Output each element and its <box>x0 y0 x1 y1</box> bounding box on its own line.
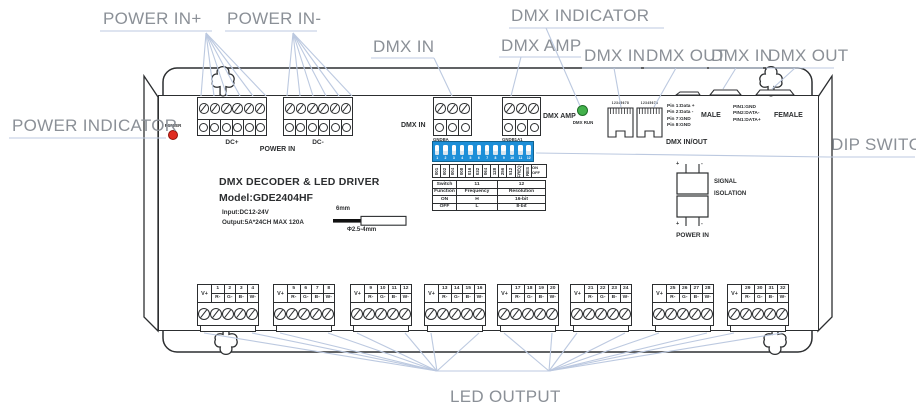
wire-hole <box>284 120 295 135</box>
screw-terminal <box>232 103 243 114</box>
rj45-pin-numbers: 12345678 <box>637 101 662 105</box>
dip-value-cell: 008 <box>457 165 465 177</box>
dc-minus-label: DC- <box>283 139 353 146</box>
dip-value-text: 004 <box>451 167 456 174</box>
screw-terminal <box>221 103 232 114</box>
dip-toggle-handle <box>477 145 482 156</box>
dip-switch: 123456789101112 <box>432 141 534 162</box>
wire-diameter-label: Φ2.5-4mm <box>347 227 376 233</box>
keyhole-slot-icon <box>760 67 782 96</box>
callout-dmx-indicator: DMX INDICATOR <box>511 6 649 26</box>
female-pinout-list: PIN1:GNDPIN2:DATA-PIN1:DATA+ <box>733 105 761 124</box>
wire-hole <box>295 120 307 135</box>
callout-led-output: LED OUTPUT <box>450 387 561 407</box>
signal-label: SIGNAL <box>714 179 737 185</box>
dip-table-row: Switch1112 <box>433 181 546 189</box>
dmx-in-screw-row <box>433 97 472 120</box>
female-pin-line: PIN1:DATA+ <box>733 118 761 124</box>
dip-toggle: 2 <box>441 142 449 161</box>
wire-hole <box>198 120 209 135</box>
wire-hole-icon <box>199 123 208 132</box>
screw-slot-icon <box>245 104 252 113</box>
screw-terminal <box>199 103 210 114</box>
dip-table-cell: Function <box>433 188 457 196</box>
dip-toggle: 4 <box>458 142 466 161</box>
right-mounting-fin <box>818 76 832 331</box>
dip-toggle: 12 <box>525 142 533 161</box>
dip-legend-off: OFF <box>532 170 546 175</box>
male-pinout-list: Pin 1:Data +Pin 2:Data -Pin 7:GNDPin 8:G… <box>667 104 695 130</box>
dmx-in-block-label: DMX IN <box>401 122 426 129</box>
screw-terminal <box>318 103 329 114</box>
screw-terminal <box>447 103 458 114</box>
dip-toggle: 6 <box>475 142 483 161</box>
diagram-canvas: DC+ DC- POWER IN GNDBA DMX IN GNDB1A1 DM… <box>0 0 916 416</box>
wire-hole <box>232 120 244 135</box>
callout-dip-switch: DIP SWITCH <box>831 135 916 155</box>
callout-dmx-out-2: DMX OUT <box>768 46 848 66</box>
female-label: FEMALE <box>774 112 803 119</box>
dip-table-cell: Switch <box>433 181 457 189</box>
dip-toggle-number: 8 <box>495 156 497 160</box>
screw-terminal <box>341 103 352 114</box>
dmx-amp-block-label: DMX AMP <box>543 113 576 120</box>
callout-power-in-minus: POWER IN- <box>227 9 321 29</box>
screw-slot-icon <box>286 104 293 113</box>
left-mounting-fin <box>144 76 158 331</box>
wire-hole-icon <box>256 123 265 132</box>
power-dc-minus-wire-holes <box>283 119 353 136</box>
power-dc-plus-screw-row <box>197 97 267 120</box>
dip-value-cell: 128 <box>490 165 498 177</box>
screw-terminal <box>296 103 307 114</box>
dip-toggle: 9 <box>500 142 508 161</box>
dip-toggle-handle <box>501 145 506 156</box>
dip-table-cell: H <box>457 196 498 204</box>
device-model: Model:GDE2404HF <box>219 192 313 204</box>
dmx-amp-screw-row <box>502 97 541 120</box>
dip-value-text: 064 <box>484 167 489 174</box>
wire-hole <box>527 120 540 135</box>
dmx-amp-wire-holes <box>502 119 541 136</box>
dmx-run-label: DMX RUN <box>568 120 598 125</box>
wire-hole-icon <box>530 123 539 132</box>
screw-slot-icon <box>200 104 207 113</box>
dip-toggle-handle <box>468 145 473 156</box>
dip-value-text: 512 <box>508 167 513 174</box>
wire-hole-icon <box>435 123 444 132</box>
dip-toggle-number: 7 <box>486 156 488 160</box>
screw-slot-icon <box>506 104 513 113</box>
dip-toggle: 7 <box>483 142 491 161</box>
screw-terminal <box>255 103 266 114</box>
dip-value-cell: 064 <box>482 165 490 177</box>
screw-slot-icon <box>437 104 444 113</box>
device-output-spec: Output:5A*24CH MAX 120A <box>222 219 304 226</box>
wire-hole <box>458 120 471 135</box>
dmx-run-led <box>577 105 588 116</box>
isolation-label: ISOLATION <box>714 191 746 197</box>
dip-table-cell: 16-bit <box>498 196 546 204</box>
male-label: MALE <box>701 112 721 119</box>
wire-hole-icon <box>308 123 317 132</box>
dip-table-cell: Resolution <box>498 188 546 196</box>
screw-slot-icon <box>309 104 316 113</box>
dip-table-cell: 12 <box>498 181 546 189</box>
wire-hole-icon <box>319 123 328 132</box>
wire-hole <box>341 120 353 135</box>
dip-table-cell: OFF <box>433 203 457 211</box>
dip-value-text: 032 <box>475 167 480 174</box>
dip-table-cell: 11 <box>457 181 498 189</box>
dip-value-cell: 001 <box>433 165 440 177</box>
screw-terminal <box>330 103 341 114</box>
wire-hole-icon <box>461 123 470 132</box>
power-dc-plus-wire-holes <box>197 119 267 136</box>
keyhole-slot-icon <box>212 67 234 96</box>
callout-power-in-plus: POWER IN+ <box>103 9 202 29</box>
dip-value-text: 002 <box>442 167 447 174</box>
dip-table-cell: L <box>457 203 498 211</box>
dip-toggle-handle <box>526 145 531 156</box>
dip-toggle: 5 <box>466 142 474 161</box>
screw-slot-icon <box>234 104 241 113</box>
callout-power-indicator: POWER INDICATOR <box>12 116 177 136</box>
wire-hole <box>209 120 221 135</box>
male-pin-line: Pin 8:GND <box>667 123 695 129</box>
dip-toggle-handle <box>493 145 498 156</box>
iso-minus-top: - <box>701 161 703 167</box>
iso-power-in-label: POWER IN <box>670 232 715 239</box>
wire-hole <box>306 120 318 135</box>
callout-dmx-in: DMX IN <box>373 37 434 57</box>
screw-terminal <box>244 103 255 114</box>
wire-hole-icon <box>448 123 457 132</box>
dip-toggle-handle <box>443 145 448 156</box>
dip-value-text: 008 <box>459 167 464 174</box>
dip-value-text: RES <box>525 166 530 175</box>
device-input-spec: Input:DC12-24V <box>222 209 269 216</box>
dip-value-cell: 512 <box>506 165 514 177</box>
screw-terminal <box>435 103 446 114</box>
wire-hole-icon <box>331 123 340 132</box>
dip-toggle-handle <box>485 145 490 156</box>
dip-value-cell: FREQ <box>515 165 523 177</box>
wire-hole <box>434 120 446 135</box>
screw-terminal <box>210 103 221 114</box>
dip-value-text: FREQ <box>517 165 522 177</box>
dip-value-cell: 004 <box>449 165 457 177</box>
wire-hole <box>243 120 255 135</box>
dip-table-row: ONH16-bit <box>433 196 546 204</box>
screw-slot-icon <box>518 104 525 113</box>
wire-hole-icon <box>210 123 219 132</box>
dip-toggle: 10 <box>508 142 516 161</box>
screw-slot-icon <box>449 104 456 113</box>
dip-toggle-handle <box>518 145 523 156</box>
screw-terminal <box>285 103 296 114</box>
dip-value-cell: 016 <box>465 165 473 177</box>
dip-toggle-number: 4 <box>461 156 463 160</box>
dmx-in-out-caption: DMX IN/OUT <box>666 139 707 146</box>
screw-terminal <box>516 103 527 114</box>
wire-length-label: 6mm <box>336 206 350 212</box>
screw-slot-icon <box>461 104 468 113</box>
screw-terminal <box>459 103 470 114</box>
dip-table-row: OFFL8-bit <box>433 203 546 211</box>
dip-toggle-handle <box>460 145 465 156</box>
wire-hole-icon <box>222 123 231 132</box>
iso-minus-bottom: - <box>701 221 703 227</box>
dip-value-cell: RES <box>523 165 531 177</box>
power-in-label: POWER IN <box>230 146 325 153</box>
wire-hole <box>503 120 515 135</box>
wire-hole-icon <box>342 123 351 132</box>
screw-slot-icon <box>530 104 537 113</box>
callout-dmx-in-2: DMX IN <box>711 46 772 66</box>
device-title: DMX DECODER & LED DRIVER <box>219 176 380 188</box>
screw-slot-icon <box>320 104 327 113</box>
male-pin-line: Pin 2:Data - <box>667 110 695 116</box>
dip-toggle: 11 <box>516 142 524 161</box>
dip-value-text: 256 <box>500 167 505 174</box>
dip-value-text: 001 <box>434 167 439 174</box>
screw-slot-icon <box>331 104 338 113</box>
wire-hole <box>255 120 267 135</box>
wire-hole <box>329 120 341 135</box>
female-pin-line: PIN2:DATA- <box>733 111 761 117</box>
screw-slot-icon <box>223 104 230 113</box>
wire-hole-icon <box>517 123 526 132</box>
dip-toggle-number: 11 <box>519 156 523 160</box>
dip-value-strip: 001002004008016032064128256512FREQRESONO… <box>432 164 547 178</box>
iso-plus-bottom: + <box>676 221 679 227</box>
dip-toggle: 3 <box>450 142 458 161</box>
dip-toggle-handle <box>435 145 440 156</box>
dip-value-text: 016 <box>467 167 472 174</box>
wire-hole-icon <box>233 123 242 132</box>
dip-table-row: FunctionFrequencyResolution <box>433 188 546 196</box>
wire-hole-icon <box>245 123 254 132</box>
dip-on-off-legend: ONOFF <box>531 165 546 177</box>
screw-slot-icon <box>342 104 349 113</box>
dip-toggle-number: 3 <box>453 156 455 160</box>
dip-toggle: 8 <box>491 142 499 161</box>
dip-value-cell: 032 <box>473 165 481 177</box>
dip-value-text: 128 <box>492 167 497 174</box>
wire-hole-icon <box>504 123 513 132</box>
dip-toggle-number: 2 <box>445 156 447 160</box>
wire-hole-icon <box>285 123 294 132</box>
dip-toggle: 1 <box>433 142 441 161</box>
wire-hole <box>515 120 528 135</box>
screw-slot-icon <box>256 104 263 113</box>
dip-value-cell: 002 <box>440 165 448 177</box>
dip-function-table: Switch1112FunctionFrequencyResolutionONH… <box>432 180 546 211</box>
wire-hole <box>220 120 232 135</box>
screw-slot-icon <box>297 104 304 113</box>
screw-terminal <box>307 103 318 114</box>
screw-terminal <box>504 103 515 114</box>
dip-toggle-number: 9 <box>503 156 505 160</box>
dip-toggle-handle <box>452 145 457 156</box>
dmx-in-wire-holes <box>433 119 472 136</box>
screw-terminal <box>528 103 539 114</box>
dip-toggle-number: 6 <box>478 156 480 160</box>
wire-hole <box>446 120 459 135</box>
dip-toggle-number: 5 <box>470 156 472 160</box>
rj45-pin-numbers: 12345678 <box>608 101 633 105</box>
callout-dmx-amp: DMX AMP <box>501 36 582 56</box>
screw-slot-icon <box>211 104 218 113</box>
dip-value-cell: 256 <box>498 165 506 177</box>
wire-hole <box>318 120 330 135</box>
dip-toggle-number: 10 <box>510 156 514 160</box>
iso-plus-top: + <box>676 161 679 167</box>
dip-table-cell: ON <box>433 196 457 204</box>
dip-table-cell: Frequency <box>457 188 498 196</box>
power-dc-minus-screw-row <box>283 97 353 120</box>
dip-toggle-number: 12 <box>527 156 531 160</box>
dip-table-cell: 8-bit <box>498 203 546 211</box>
dip-toggle-handle <box>510 145 515 156</box>
callout-dmx-in-1: DMX IN <box>584 46 645 66</box>
dc-plus-label: DC+ <box>197 139 267 146</box>
wire-hole-icon <box>296 123 305 132</box>
dip-toggle-number: 1 <box>436 156 438 160</box>
